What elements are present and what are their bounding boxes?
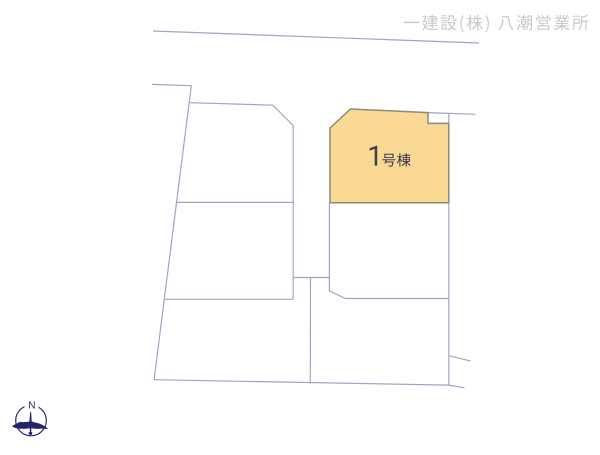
svg-text:N: N — [28, 400, 35, 411]
